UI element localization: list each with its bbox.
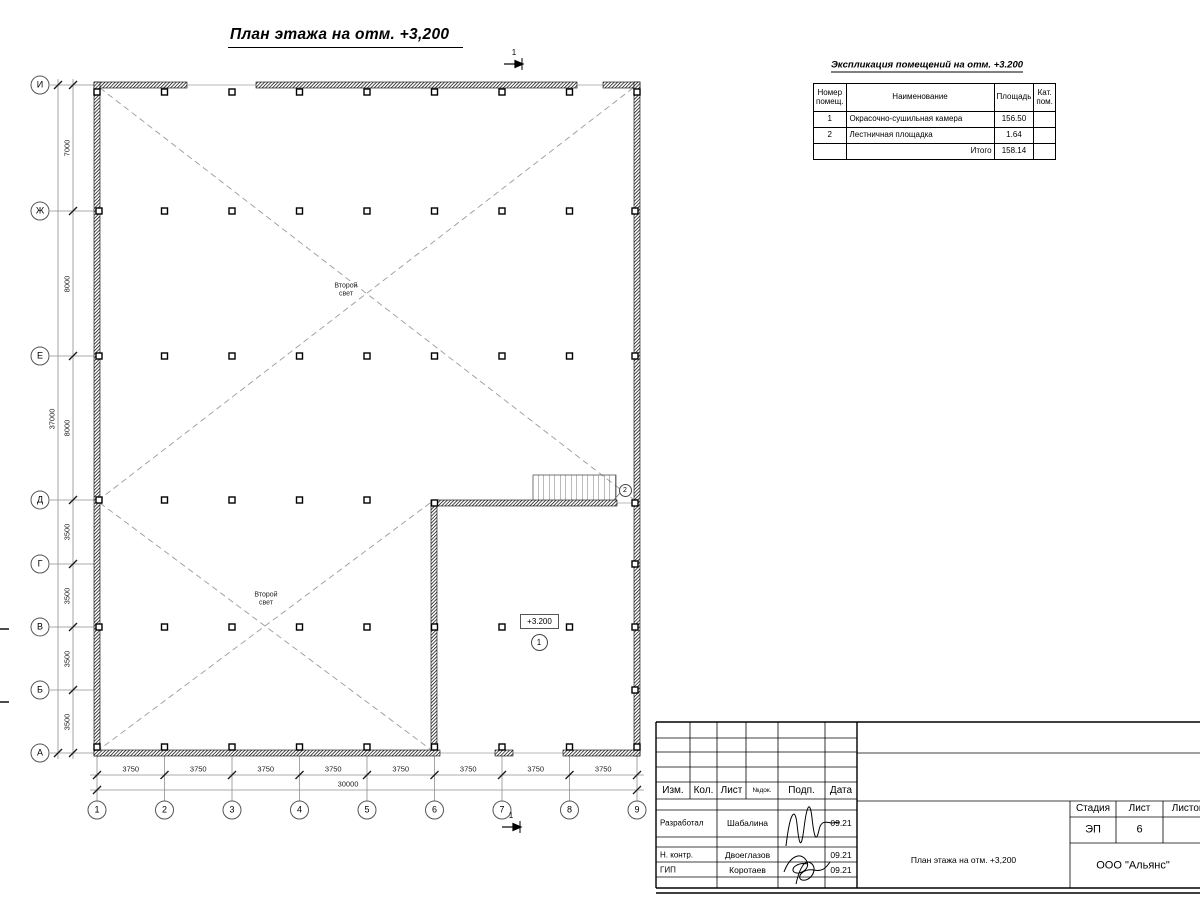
- room-number-cell: 1: [814, 112, 847, 128]
- col-header-area: Площадь: [994, 84, 1034, 112]
- room-number-bubble-2: 2: [619, 484, 632, 497]
- void-label-line2: свет: [254, 600, 277, 608]
- total-empty-cell: [814, 144, 847, 160]
- dim-bottom-6: 3750: [460, 765, 477, 773]
- total-label-cell: Итого: [846, 144, 994, 160]
- dim-left-4: 3500: [63, 524, 71, 541]
- total-value-cell: 158.14: [994, 144, 1034, 160]
- tb-role-gip: ГИП: [660, 865, 676, 874]
- dim-left-1: 7000: [63, 140, 71, 157]
- tb-stage-label: Стадия: [1076, 804, 1110, 814]
- dim-left-3: 8000: [63, 420, 71, 437]
- void-label-upper: Второй свет: [334, 283, 357, 300]
- grid-bubble-a: А: [37, 749, 43, 758]
- tb-name-ncontrol: Двоеглазов: [725, 850, 770, 859]
- grid-bubble-v: В: [37, 623, 43, 632]
- grid-bubble-d: Д: [37, 496, 43, 505]
- dim-bottom-total: 30000: [338, 780, 359, 788]
- dim-bottom-8: 3750: [595, 765, 612, 773]
- col-header-name: Наименование: [846, 84, 994, 112]
- grid-bubble-3: 3: [229, 806, 234, 815]
- dim-left-total: 37000: [48, 409, 56, 430]
- tb-col-podp: Подп.: [788, 786, 815, 796]
- tb-col-list: Лист: [721, 786, 743, 796]
- void-diagonals: [100, 88, 633, 749]
- tb-date-developer: 09.21: [830, 819, 851, 828]
- dim-bottom-7: 3750: [527, 765, 544, 773]
- explication-header-row: Номер помещ. Наименование Площадь Кат. п…: [814, 84, 1056, 112]
- title-block-lines: [0, 629, 1200, 893]
- room-name-cell: Окрасочно-сушильная камера: [846, 112, 994, 128]
- tb-organization-name: ООО "Альянс": [1096, 860, 1170, 871]
- dim-left-6: 3500: [63, 650, 71, 667]
- tb-col-izm: Изм.: [662, 786, 683, 796]
- dim-bottom-3: 3750: [257, 765, 274, 773]
- dim-left-7: 3500: [63, 713, 71, 730]
- dim-left-2: 8000: [63, 275, 71, 292]
- wall-openings: [187, 85, 634, 753]
- void-label-line2: свет: [334, 291, 357, 299]
- tb-date-gip: 09.21: [830, 865, 851, 874]
- grid-bubble-8: 8: [567, 806, 572, 815]
- tb-sheet-value: 6: [1136, 825, 1142, 836]
- tb-sheets-label: Листов: [1172, 804, 1200, 814]
- tb-document-name: План этажа на отм. +3,200: [911, 856, 1016, 865]
- tb-col-ndok: №док.: [752, 788, 771, 795]
- grid-bubble-2: 2: [162, 806, 167, 815]
- tb-role-developer: Разработал: [660, 819, 704, 828]
- col-header-category: Кат. пом.: [1034, 84, 1056, 112]
- section-cut-arrows: [502, 58, 523, 833]
- dim-bottom-2: 3750: [190, 765, 207, 773]
- explication-table: Номер помещ. Наименование Площадь Кат. п…: [813, 83, 1056, 160]
- grid-bubble-b: Б: [37, 686, 43, 695]
- section-mark-bottom: 1: [509, 812, 513, 820]
- total-cat-cell: [1034, 144, 1056, 160]
- drawing-sheet: План этажа на отм. +3,200 1 1 Экспликаци…: [0, 0, 1200, 900]
- grid-bubble-e: Е: [37, 352, 43, 361]
- void-label-line1: Второй: [334, 283, 357, 291]
- axis-bubbles: [31, 76, 646, 819]
- grid-bubble-1: 1: [94, 806, 99, 815]
- grid-bubble-4: 4: [297, 806, 302, 815]
- elevation-mark: +3.200: [520, 614, 559, 629]
- room-name-cell: Лестничная площадка: [846, 128, 994, 144]
- room-cat-cell: [1034, 128, 1056, 144]
- page-title: План этажа на отм. +3,200: [228, 26, 463, 48]
- tb-role-ncontrol: Н. контр.: [660, 850, 693, 859]
- room-number-cell: 2: [814, 128, 847, 144]
- room-number-bubble-1: 1: [531, 634, 548, 651]
- grid-bubble-g: Г: [38, 560, 43, 569]
- grid-bubble-5: 5: [364, 806, 369, 815]
- tb-name-gip: Коротаев: [729, 865, 766, 874]
- dim-bottom-5: 3750: [392, 765, 409, 773]
- table-total-row: Итого 158.14: [814, 144, 1056, 160]
- col-header-number: Номер помещ.: [814, 84, 847, 112]
- void-label-line1: Второй: [254, 592, 277, 600]
- tb-col-kol: Кол.: [694, 786, 714, 796]
- table-row: 2 Лестничная площадка 1.64: [814, 128, 1056, 144]
- staircase: [533, 475, 620, 502]
- tb-stage-value: ЭП: [1085, 825, 1101, 836]
- grid-bubble-i: И: [37, 81, 43, 90]
- grid-axis-lines: [50, 85, 637, 801]
- walls: [94, 82, 640, 756]
- room-area-cell: 1.64: [994, 128, 1034, 144]
- grid-bubble-zh: Ж: [36, 207, 44, 216]
- tb-col-data: Дата: [830, 786, 852, 796]
- room-area-cell: 156.50: [994, 112, 1034, 128]
- dim-bottom-1: 3750: [122, 765, 139, 773]
- void-label-lower: Второй свет: [254, 592, 277, 609]
- grid-bubble-7: 7: [499, 806, 504, 815]
- tb-date-ncontrol: 09.21: [830, 850, 851, 859]
- grid-bubble-6: 6: [432, 806, 437, 815]
- dim-left-5: 3500: [63, 587, 71, 604]
- tb-sheet-label: Лист: [1129, 804, 1151, 814]
- dimension-lines: [58, 79, 644, 790]
- tb-name-developer: Шабалина: [727, 819, 768, 828]
- room-cat-cell: [1034, 112, 1056, 128]
- dim-bottom-4: 3750: [325, 765, 342, 773]
- columns: [94, 89, 640, 750]
- grid-bubble-9: 9: [634, 806, 639, 815]
- section-mark-top: 1: [512, 49, 516, 57]
- table-row: 1 Окрасочно-сушильная камера 156.50: [814, 112, 1056, 128]
- explication-title: Экспликация помещений на отм. +3.200: [831, 60, 1023, 73]
